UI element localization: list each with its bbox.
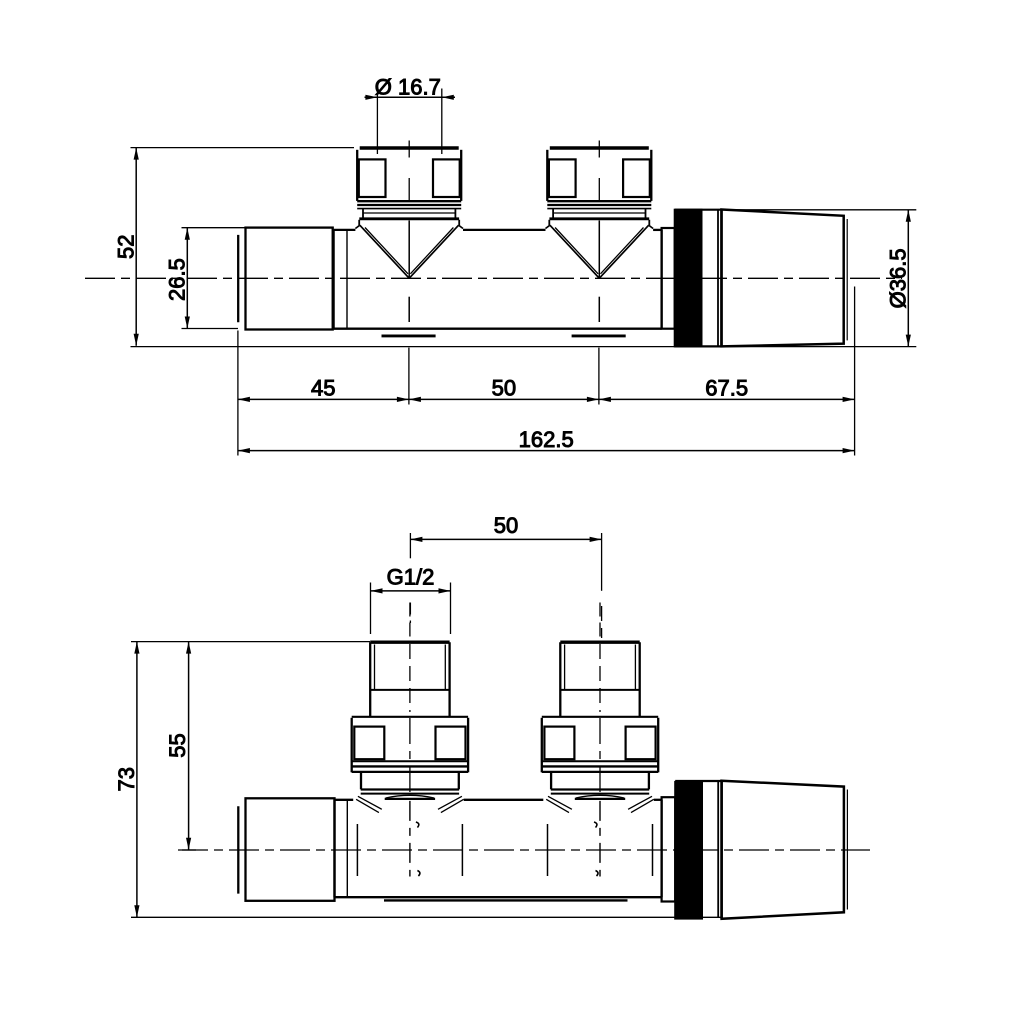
svg-text:45: 45	[311, 376, 335, 401]
svg-text:73: 73	[114, 767, 139, 791]
svg-text:50: 50	[494, 513, 518, 538]
svg-text:52: 52	[114, 234, 139, 258]
svg-text:67.5: 67.5	[705, 376, 748, 401]
svg-text:G1/2: G1/2	[387, 564, 435, 589]
svg-text:50: 50	[492, 376, 516, 401]
svg-text:Ø 16.7: Ø 16.7	[375, 74, 441, 99]
svg-text:26.5: 26.5	[164, 258, 189, 301]
svg-text:55: 55	[165, 733, 190, 757]
svg-text:162.5: 162.5	[519, 427, 574, 452]
svg-text:Ø36.5: Ø36.5	[886, 248, 911, 308]
